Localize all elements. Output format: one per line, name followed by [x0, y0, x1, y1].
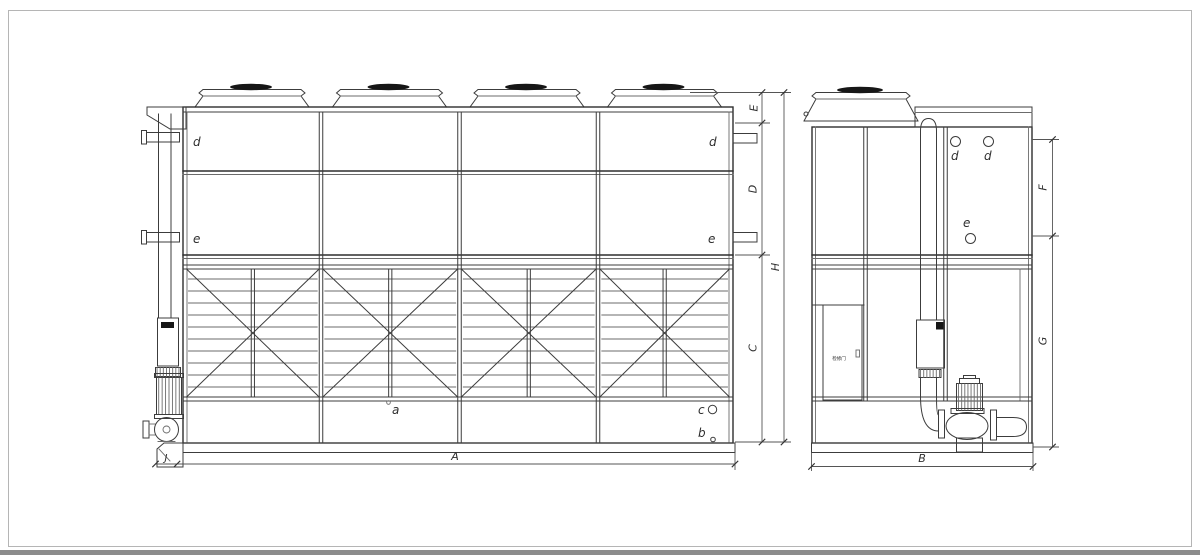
label-dim-D: D — [747, 185, 760, 193]
outlet-stub-flange — [142, 231, 147, 245]
label-conn-e-left: e — [193, 232, 200, 246]
control-box-window — [161, 322, 174, 328]
label-point-c: c — [698, 403, 705, 417]
front-view: d e d e a c b E D C H J A — [142, 84, 792, 470]
coupling-hatch-front — [157, 368, 179, 377]
left-foot-block — [157, 443, 183, 467]
fan-cowl — [195, 90, 309, 108]
pump-suction-flange-front — [143, 421, 149, 438]
fan-hub — [230, 84, 272, 90]
conn-d-port-1 — [951, 137, 961, 147]
fan-hub — [837, 87, 883, 93]
label-conn-d-side-2: d — [984, 149, 992, 163]
label-conn-e-right: e — [708, 232, 715, 246]
label-dim-E: E — [748, 104, 761, 111]
base-rail-front — [183, 443, 735, 453]
point-c-marker — [708, 405, 716, 413]
front-labels: d e d e a c b — [193, 135, 717, 442]
inlet-stub-front-left — [147, 133, 180, 143]
label-dim-H: H — [769, 263, 782, 271]
basin-front — [157, 443, 735, 467]
access-door: 检修门 — [812, 305, 864, 400]
label-dim-C: C — [747, 344, 760, 352]
label-conn-d-right: d — [709, 135, 717, 149]
inlet-stub-flange — [142, 131, 147, 145]
left-riser-pipe — [142, 107, 187, 318]
pipe-top-bracket — [147, 107, 186, 129]
label-point-b: b — [698, 426, 706, 440]
side-view: 检修门 — [804, 87, 1059, 471]
label-dim-B: B — [918, 452, 926, 465]
tower-body-side — [812, 127, 1032, 443]
pump-suction-flange-side — [939, 410, 945, 438]
door-label: 检修门 — [832, 355, 846, 362]
label-dim-F: F — [1037, 184, 1050, 191]
motor-ribs-front — [159, 378, 180, 414]
fan-cowl — [804, 93, 918, 122]
pump-pedestal — [957, 438, 983, 452]
side-structure-lines — [804, 107, 1032, 443]
side-labels: d d e — [951, 137, 994, 244]
inlet-stub-front-right — [733, 134, 757, 144]
door-handle — [856, 350, 860, 357]
fan-hub — [505, 84, 547, 90]
fan-cowl-side — [804, 87, 918, 121]
bottom-edge-bar — [0, 550, 1200, 555]
pump-discharge-flange — [991, 410, 997, 440]
pump-volute-front — [155, 418, 179, 442]
conn-d-port-2 — [984, 137, 994, 147]
label-dim-G: G — [1037, 337, 1050, 346]
label-dim-A: A — [450, 450, 459, 463]
label-point-a: a — [392, 403, 399, 417]
discharge-end-cap — [1013, 418, 1027, 437]
spray-pump-side — [939, 376, 1027, 453]
top-duct-panel — [915, 107, 1032, 127]
fan-hub — [643, 84, 685, 90]
label-conn-d-side-1: d — [951, 149, 959, 163]
side-bay-dividers — [864, 127, 948, 400]
label-dim-J: J — [163, 453, 168, 464]
outlet-stub-front-left — [147, 233, 180, 243]
conn-e-port — [966, 234, 976, 244]
spray-pump-front — [143, 318, 184, 442]
label-conn-e-side: e — [963, 216, 970, 230]
internal-riser-pipe — [917, 119, 945, 432]
coupling-front — [156, 368, 181, 377]
cooling-tower-drawing: d e d e a c b E D C H J A — [0, 0, 1200, 559]
valve-box-window — [936, 322, 944, 330]
pump-volute-side — [946, 413, 988, 440]
fan-cowl — [333, 90, 447, 108]
fan-hub — [368, 84, 410, 90]
point-b-marker — [711, 437, 716, 442]
fan-cowl — [470, 90, 584, 108]
fan-cowls-front — [195, 84, 722, 107]
riser-coupling-hatch — [921, 370, 940, 378]
label-conn-d-left: d — [193, 135, 201, 149]
drawing-page: d e d e a c b E D C H J A — [0, 0, 1200, 559]
outlet-stub-front-right — [733, 233, 757, 243]
front-bay-dividers — [319, 112, 600, 443]
